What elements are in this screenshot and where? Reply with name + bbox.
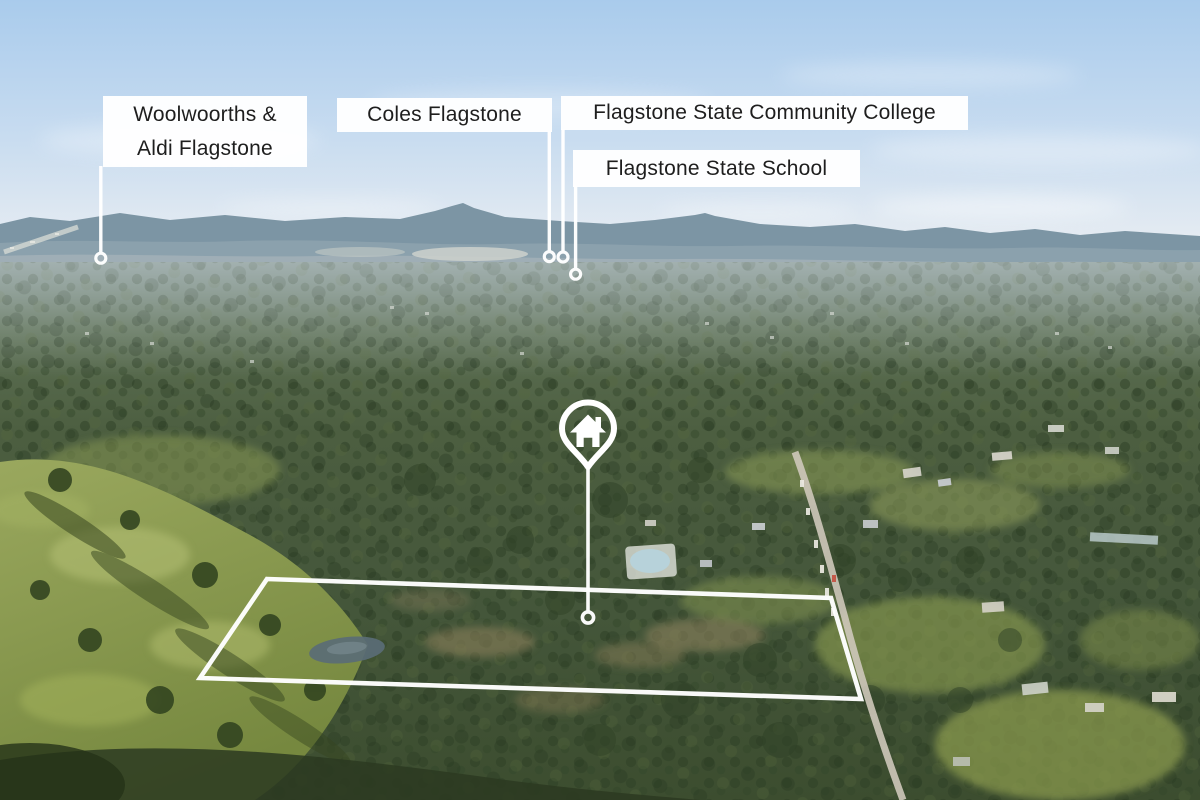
poi-label-college: Flagstone State Community College — [561, 96, 968, 130]
poi-label-line: Woolwoorths & — [133, 98, 276, 132]
poi-label-woolworths-aldi: Woolwoorths & Aldi Flagstone — [103, 96, 307, 167]
poi-label-text: Flagstone State Community College — [593, 101, 936, 125]
poi-label-text: Flagstone State School — [606, 157, 828, 181]
red-car — [832, 575, 836, 582]
poi-label-line: Aldi Flagstone — [137, 132, 273, 166]
poi-label-text: Coles Flagstone — [367, 103, 522, 127]
poi-label-coles: Coles Flagstone — [337, 98, 552, 132]
aerial-photo-scene: Woolwoorths & Aldi Flagstone Coles Flags… — [0, 0, 1200, 800]
poi-label-school: Flagstone State School — [573, 150, 860, 187]
